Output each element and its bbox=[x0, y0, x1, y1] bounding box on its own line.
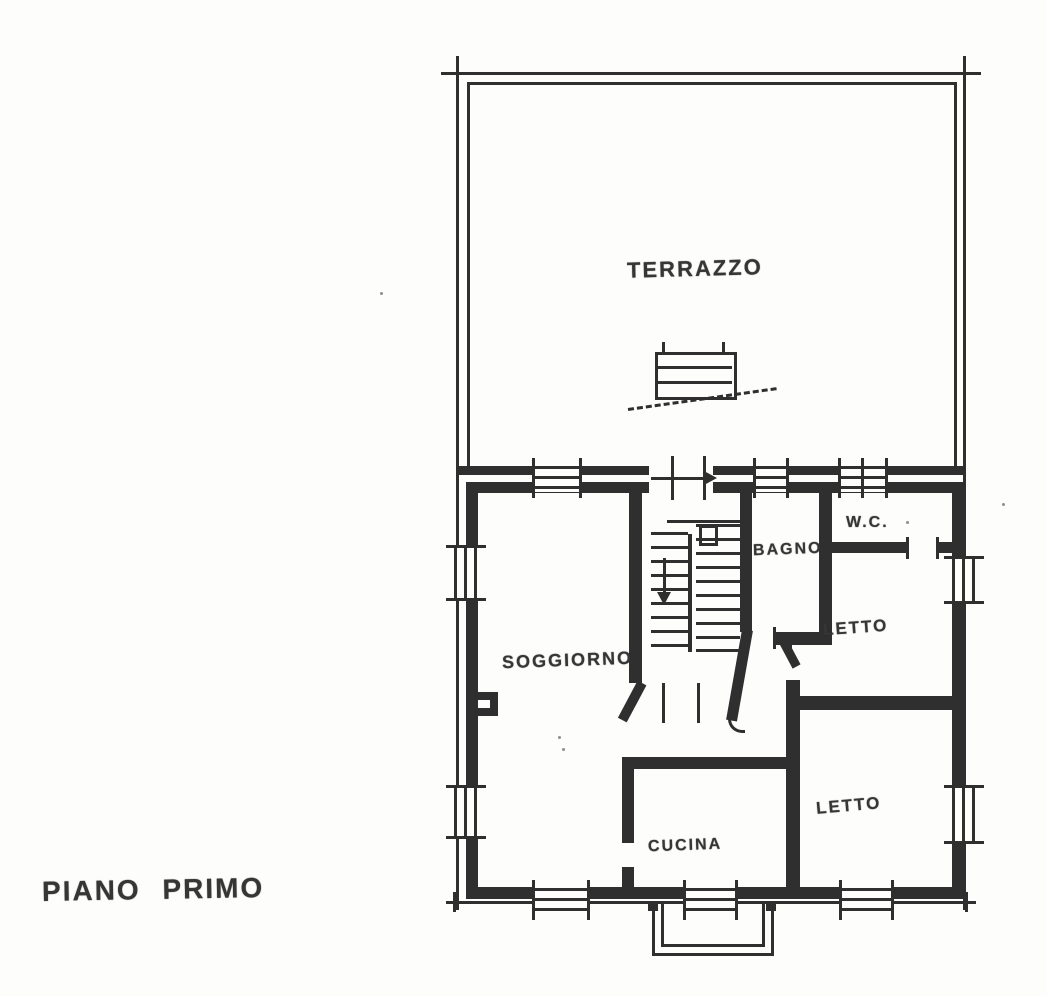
wall-hall-letto bbox=[786, 680, 800, 888]
pilaster bbox=[478, 692, 498, 700]
balcony-edge-inner bbox=[661, 903, 664, 947]
window-letto-lower-east bbox=[944, 785, 984, 844]
scan-speck bbox=[558, 736, 561, 739]
balcony-edge bbox=[652, 953, 774, 956]
door-jamb-tick bbox=[936, 537, 939, 559]
stair-step bbox=[651, 546, 688, 549]
door-arrow-icon bbox=[704, 471, 717, 485]
scan-speck bbox=[380, 292, 383, 295]
stair-step bbox=[651, 532, 688, 535]
terrace-parapet-right-inner bbox=[954, 82, 957, 472]
door-jamb-tick bbox=[662, 683, 665, 723]
dim-tick bbox=[722, 342, 725, 354]
balcony-edge-inner bbox=[661, 944, 765, 947]
dim-tick bbox=[453, 892, 456, 912]
stair-landing-line bbox=[667, 520, 740, 523]
stair-step bbox=[696, 649, 740, 652]
door-jamb-tick bbox=[773, 627, 776, 649]
stair-step bbox=[651, 616, 688, 619]
window-bagno bbox=[753, 458, 789, 498]
stair-step bbox=[696, 594, 740, 597]
window-soggiorno-south bbox=[532, 880, 590, 920]
window-soggiorno-west-upper bbox=[446, 545, 486, 601]
door-jamb-tick bbox=[697, 683, 700, 723]
floor-plan-sheet: TERRAZZO SOGGIORNO BAGNO W.C. LETTO LETT… bbox=[0, 0, 1047, 996]
scan-speck bbox=[562, 748, 565, 751]
wall-wc-south-b bbox=[937, 542, 952, 553]
balcony-pier bbox=[766, 901, 776, 911]
stair-arrow-icon bbox=[657, 592, 671, 605]
window-wc bbox=[838, 458, 888, 498]
scan-speck bbox=[906, 521, 909, 524]
dim-tick bbox=[965, 892, 968, 912]
window-mullion-tick bbox=[861, 458, 864, 498]
pilaster bbox=[478, 708, 492, 716]
dim-tick bbox=[964, 72, 981, 75]
door-swing-arc bbox=[728, 716, 745, 733]
stair-step bbox=[696, 524, 740, 527]
door-jamb-tick bbox=[906, 537, 909, 559]
stair-step bbox=[651, 588, 688, 591]
window-cucina-balcony bbox=[683, 880, 738, 920]
room-label-wc: W.C. bbox=[846, 515, 889, 531]
terrace-stair bbox=[655, 352, 737, 400]
balcony-edge-inner bbox=[762, 903, 765, 947]
stair-arrow-shaft bbox=[663, 558, 666, 594]
wall-letto-divide bbox=[800, 696, 952, 710]
wall-wc-south-a bbox=[832, 542, 909, 553]
room-label-cucina: CUCINA bbox=[648, 837, 723, 856]
room-label-letto-upper: LETTO bbox=[822, 617, 888, 639]
stair-step bbox=[696, 608, 740, 611]
dim-tick bbox=[441, 72, 458, 75]
dim-tick bbox=[792, 746, 795, 776]
stair-soffit-diagonal bbox=[726, 629, 753, 722]
dim-tick bbox=[662, 342, 665, 354]
window-soggiorno-terrace bbox=[532, 458, 582, 498]
room-label-bagno: BAGNO bbox=[753, 541, 823, 559]
stair-step bbox=[696, 552, 740, 555]
door-arrow-shaft bbox=[651, 477, 707, 480]
stair-step bbox=[696, 636, 740, 639]
wall-cucina-west-stub bbox=[622, 867, 634, 887]
door-leaf-soggiorno bbox=[618, 681, 647, 723]
floor-title: PIANO PRIMO bbox=[42, 874, 265, 906]
balcony-pier bbox=[648, 901, 658, 911]
terrace-parapet-top-outer bbox=[458, 72, 965, 75]
terrace-parapet-top-inner bbox=[467, 82, 957, 85]
room-label-soggiorno: SOGGIORNO bbox=[502, 649, 634, 672]
stair-tread-line bbox=[658, 381, 732, 384]
terrace-parapet-left-inner bbox=[467, 82, 470, 472]
stair-step bbox=[696, 622, 740, 625]
wall-cucina-west bbox=[622, 769, 634, 843]
scan-speck bbox=[1002, 503, 1005, 506]
wall-stairwell-bagno bbox=[740, 482, 752, 632]
stair-step bbox=[696, 580, 740, 583]
wall-cucina-north bbox=[622, 757, 798, 769]
stair-step bbox=[696, 566, 740, 569]
room-label-letto-lower: LETTO bbox=[815, 794, 882, 817]
stair-divider bbox=[688, 534, 692, 652]
stair-step bbox=[651, 574, 688, 577]
stair-step bbox=[651, 560, 688, 563]
window-letto-lower-south bbox=[839, 880, 894, 920]
stair-tread-line bbox=[658, 366, 732, 369]
stair-step bbox=[651, 630, 688, 633]
stair-step bbox=[651, 644, 688, 647]
window-soggiorno-west-lower bbox=[446, 785, 486, 839]
stair-newel-box bbox=[699, 525, 718, 546]
room-label-terrazzo: TERRAZZO bbox=[627, 256, 763, 282]
stair-step bbox=[696, 538, 740, 541]
window-letto-upper-east bbox=[944, 556, 984, 604]
